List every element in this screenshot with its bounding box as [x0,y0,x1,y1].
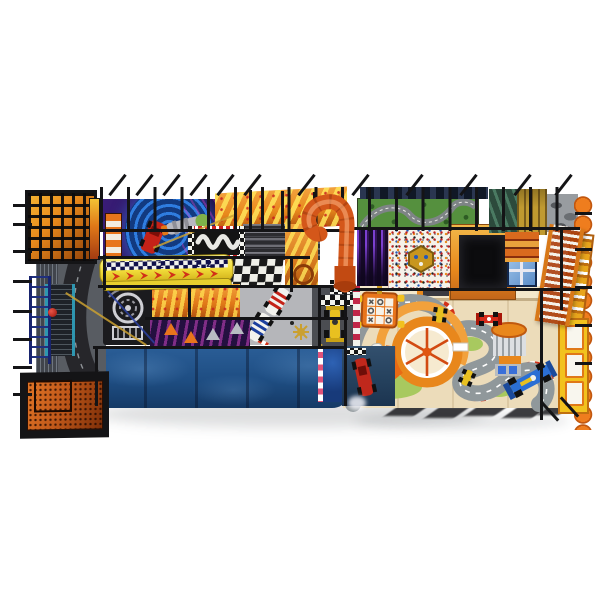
yellow-kart-art [318,304,354,346]
frame-stub [13,280,32,283]
orange-slat-stack [505,232,539,262]
frame-stub [575,212,592,215]
hexagon-badge [406,245,436,273]
white-bench [453,343,468,351]
confetti-panel [388,228,453,290]
window [565,325,584,350]
foam-pit [459,235,507,289]
blue-ladder [29,276,51,364]
red-ball [48,308,57,317]
cone-icon [230,322,244,334]
frame-stub [575,362,592,365]
orange-drum [492,323,526,376]
frame-stub [13,310,32,313]
cone-icon [184,331,198,343]
container-window-frame [34,380,72,413]
slide-lane-number: 1 [194,260,201,270]
frame-post [95,346,98,406]
red-striped-car [262,285,293,318]
frame-stub [13,338,32,341]
cone-icon [206,328,220,340]
frame-stub [575,324,592,327]
frame-stub [13,223,32,226]
frame-stub [13,393,32,396]
window [565,353,584,378]
blue-road-section [342,346,395,406]
orange-tube-slide [300,190,370,298]
slide-lane-number: 2 [206,260,213,270]
playground-product-photo: 2 1 2 [0,0,600,600]
frame-post [560,230,563,310]
frame-post [290,258,293,292]
blue-wall [96,348,346,408]
frame-post [188,285,191,320]
frame-stub [575,286,592,289]
gold-star-badge [293,324,309,340]
frame-post [103,255,106,290]
red-car-art [346,350,391,402]
frame-beam [98,256,310,259]
traffic-cone-panel [150,318,250,346]
frame-post [344,286,347,406]
frame-stub [575,248,592,251]
frame-stub [13,366,32,369]
climbing-net-cage [25,190,97,264]
frame-stub [13,204,32,207]
frame-beam [343,288,580,291]
cage-side-strip [89,198,100,260]
slide-lane-number: 2 [158,261,165,271]
frame-beam [93,346,347,349]
cone-icon [164,323,178,335]
frame-stub [13,250,32,253]
smoke-puff [348,396,366,410]
